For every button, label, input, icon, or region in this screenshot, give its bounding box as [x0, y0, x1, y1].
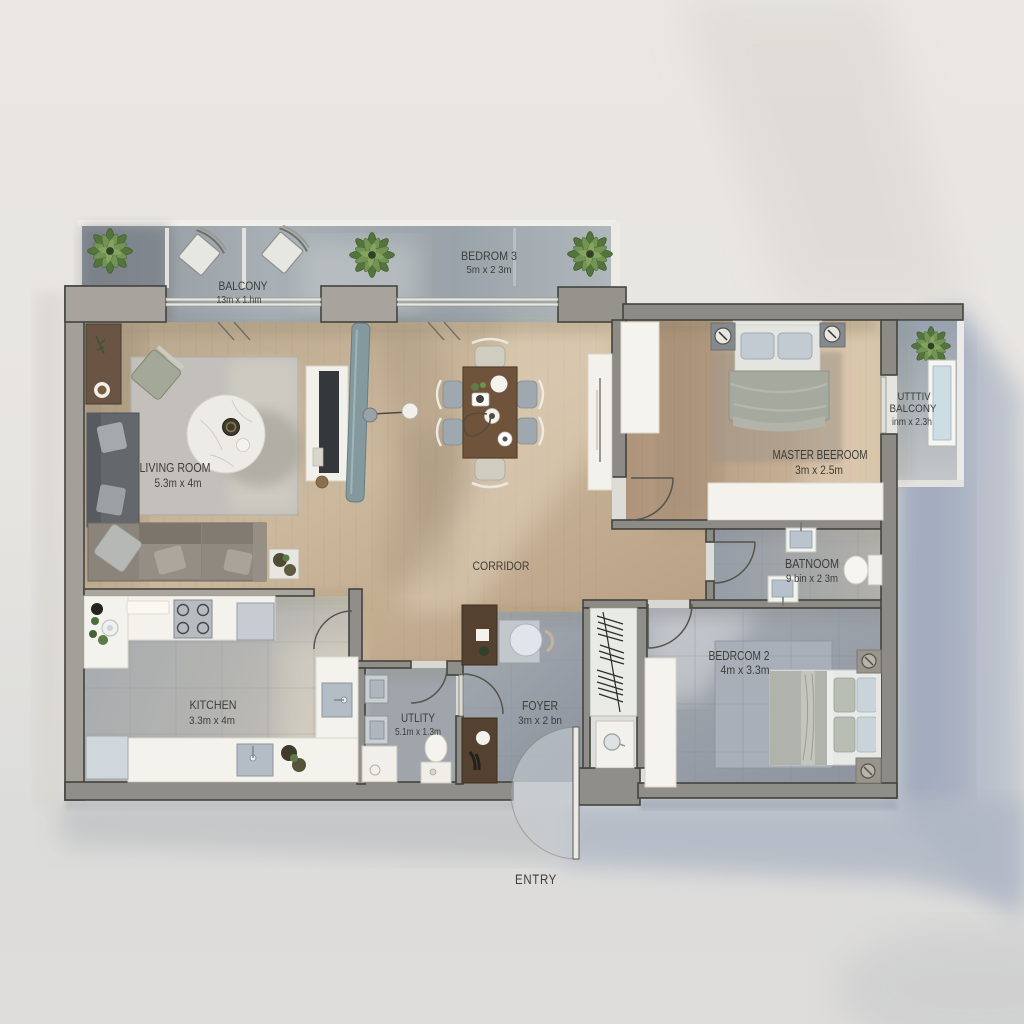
- svg-text:BALCONY: BALCONY: [219, 281, 268, 293]
- svg-text:3m x 2.5m: 3m x 2.5m: [795, 463, 843, 477]
- svg-text:UTLITY: UTLITY: [401, 713, 435, 725]
- svg-text:inm x 2.3h: inm x 2.3h: [892, 417, 932, 428]
- svg-text:ENTRY: ENTRY: [515, 872, 557, 887]
- svg-text:5.3m x 4m: 5.3m x 4m: [155, 478, 202, 490]
- svg-text:UTTTIV: UTTTIV: [898, 391, 932, 403]
- svg-text:5.1m x 1.3m: 5.1m x 1.3m: [395, 726, 441, 738]
- svg-text:LIVING ROOM: LIVING ROOM: [140, 460, 211, 475]
- svg-text:5m x 2 3m: 5m x 2 3m: [467, 264, 512, 276]
- svg-text:BEDRCOM 2: BEDRCOM 2: [709, 648, 770, 663]
- svg-text:CORRIDOR: CORRIDOR: [473, 559, 530, 573]
- svg-text:3m x 2 bn: 3m x 2 bn: [518, 715, 562, 727]
- svg-text:KITCHEN: KITCHEN: [190, 698, 237, 712]
- svg-text:3.3m x 4m: 3.3m x 4m: [189, 715, 235, 727]
- svg-text:BEDROM 3: BEDROM 3: [461, 249, 517, 263]
- svg-text:13m x 1.hm: 13m x 1.hm: [217, 295, 262, 306]
- svg-text:4m x 3.3m: 4m x 3.3m: [721, 663, 770, 677]
- svg-text:BATNOOM: BATNOOM: [785, 557, 839, 571]
- svg-text:9 bin x 2 3m: 9 bin x 2 3m: [786, 573, 838, 585]
- svg-text:MASTER BEEROOM: MASTER BEEROOM: [773, 447, 868, 462]
- svg-text:FOYER: FOYER: [522, 699, 558, 713]
- svg-text:BALCONY: BALCONY: [890, 403, 938, 415]
